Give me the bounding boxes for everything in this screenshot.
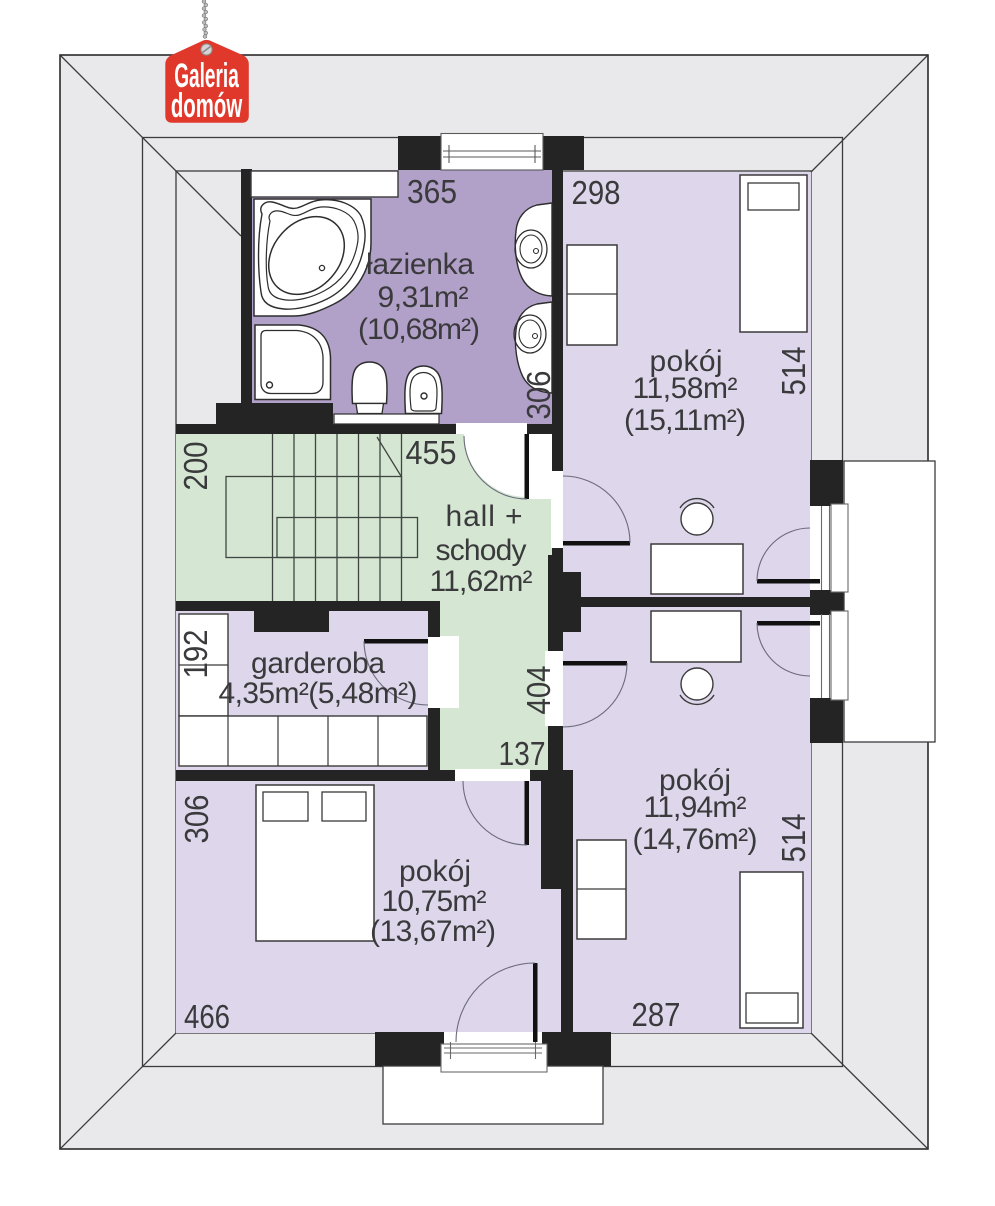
- svg-text:(14,76m²): (14,76m²): [633, 823, 758, 856]
- svg-text:(13,67m²): (13,67m²): [370, 915, 496, 948]
- svg-text:garderoba: garderoba: [251, 647, 385, 680]
- svg-text:514: 514: [775, 814, 812, 863]
- svg-text:(15,11m²): (15,11m²): [624, 404, 746, 437]
- svg-text:298: 298: [572, 174, 621, 211]
- svg-text:domów: domów: [171, 87, 242, 125]
- svg-text:192: 192: [177, 630, 214, 679]
- svg-text:466: 466: [184, 998, 230, 1035]
- svg-text:514: 514: [775, 347, 812, 396]
- svg-text:hall +: hall +: [446, 500, 523, 533]
- svg-text:10,75m²: 10,75m²: [382, 885, 487, 918]
- svg-text:404: 404: [520, 666, 557, 715]
- svg-text:200: 200: [177, 442, 214, 491]
- svg-text:schody: schody: [436, 534, 527, 567]
- svg-text:306: 306: [178, 795, 215, 844]
- svg-text:łazienka: łazienka: [366, 248, 474, 281]
- svg-text:4,35m²(5,48m²): 4,35m²(5,48m²): [219, 677, 418, 710]
- svg-text:365: 365: [407, 173, 457, 210]
- svg-text:9,31m²: 9,31m²: [378, 281, 469, 314]
- svg-text:137: 137: [499, 735, 546, 772]
- svg-text:11,62m²: 11,62m²: [430, 565, 533, 598]
- svg-text:pokój: pokój: [399, 855, 471, 888]
- svg-text:11,94m²: 11,94m²: [644, 791, 747, 824]
- svg-text:455: 455: [406, 434, 457, 471]
- svg-text:(10,68m²): (10,68m²): [358, 313, 480, 346]
- svg-text:287: 287: [632, 996, 681, 1033]
- svg-text:11,58m²: 11,58m²: [633, 372, 738, 405]
- svg-text:306: 306: [520, 371, 557, 420]
